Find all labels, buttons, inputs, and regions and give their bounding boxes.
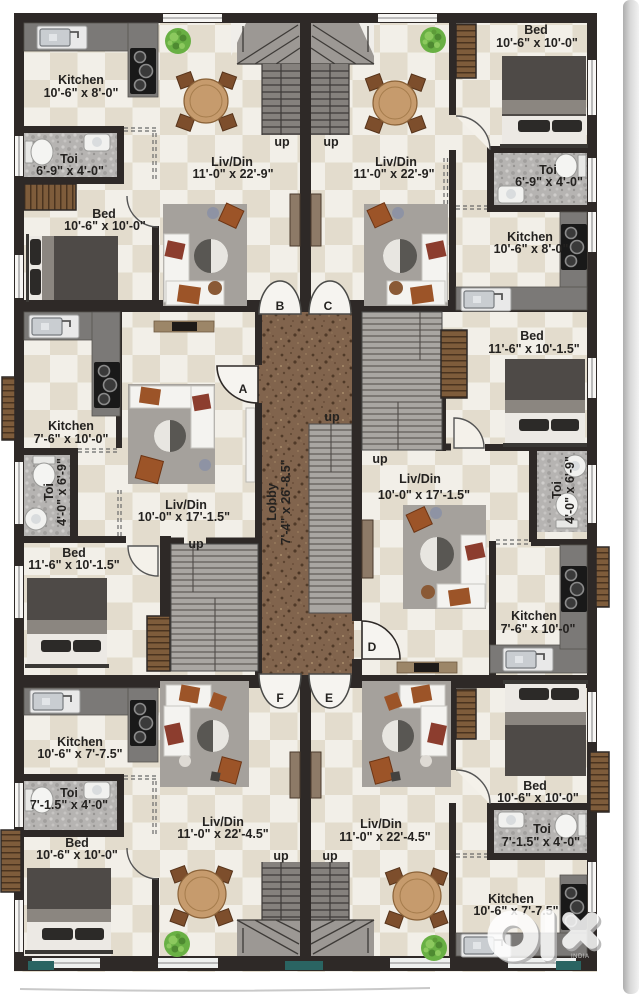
svg-text:4'-0" x 6'-9": 4'-0" x 6'-9" [563, 456, 577, 524]
svg-text:6'-9" x 4'-0": 6'-9" x 4'-0" [515, 175, 583, 189]
svg-text:11'-6" x 10'-1.5": 11'-6" x 10'-1.5" [28, 558, 120, 572]
svg-text:INDIA: INDIA [571, 954, 590, 960]
svg-text:Toi: Toi [42, 483, 56, 501]
svg-text:10'-6" x 7'-7.5": 10'-6" x 7'-7.5" [37, 747, 122, 761]
svg-text:D: D [368, 640, 377, 654]
svg-text:7'-6" x 10'-0": 7'-6" x 10'-0" [501, 622, 576, 636]
svg-text:E: E [325, 691, 333, 705]
svg-text:10'-6" x 8'-0": 10'-6" x 8'-0" [494, 242, 569, 256]
svg-text:Bed: Bed [524, 23, 548, 37]
svg-text:B: B [276, 299, 285, 313]
svg-text:Liv/Din: Liv/Din [360, 817, 402, 831]
svg-text:7'-4" x 26'-8.5": 7'-4" x 26'-8.5" [279, 459, 293, 544]
svg-text:6'-9" x 4'-0": 6'-9" x 4'-0" [36, 164, 104, 178]
svg-text:Toi: Toi [533, 822, 551, 836]
svg-text:up: up [322, 849, 338, 863]
svg-text:up: up [323, 135, 339, 149]
svg-text:Kitchen: Kitchen [58, 73, 104, 87]
svg-text:11'-0" x 22'-4.5": 11'-0" x 22'-4.5" [339, 830, 431, 844]
svg-text:Kitchen: Kitchen [511, 609, 557, 623]
svg-text:Kitchen: Kitchen [48, 419, 94, 433]
svg-text:7'-1.5" x 4'-0": 7'-1.5" x 4'-0" [502, 835, 580, 849]
svg-text:up: up [273, 849, 289, 863]
svg-text:Toi: Toi [550, 481, 564, 499]
svg-text:10'-6" x 10'-0": 10'-6" x 10'-0" [64, 219, 146, 233]
svg-text:10'-6" x 8'-0": 10'-6" x 8'-0" [44, 86, 119, 100]
svg-text:Liv/Din: Liv/Din [399, 472, 441, 486]
svg-text:11'-0" x 22'-9": 11'-0" x 22'-9" [192, 167, 273, 181]
svg-text:A: A [239, 382, 248, 396]
svg-text:Lobby: Lobby [265, 483, 279, 521]
svg-text:up: up [188, 537, 204, 551]
svg-text:11'-0" x 22'-9": 11'-0" x 22'-9" [353, 167, 434, 181]
svg-text:up: up [324, 410, 340, 424]
svg-text:up: up [372, 452, 388, 466]
svg-text:10'-0" x 17'-1.5": 10'-0" x 17'-1.5" [138, 510, 230, 524]
svg-text:10'-6" x 10'-0": 10'-6" x 10'-0" [36, 848, 118, 862]
svg-text:C: C [324, 299, 333, 313]
svg-text:up: up [274, 135, 290, 149]
svg-text:10'-0" x 17'-1.5": 10'-0" x 17'-1.5" [378, 488, 470, 502]
svg-text:7'-1.5" x 4'-0": 7'-1.5" x 4'-0" [30, 798, 108, 812]
svg-text:7'-6" x 10'-0": 7'-6" x 10'-0" [34, 432, 109, 446]
svg-text:Bed: Bed [520, 329, 544, 343]
svg-text:4'-0" x 6'-9": 4'-0" x 6'-9" [55, 458, 69, 526]
svg-text:10'-6" x 10'-0": 10'-6" x 10'-0" [497, 791, 579, 805]
svg-text:F: F [276, 691, 283, 705]
svg-text:10'-6" x 10'-0": 10'-6" x 10'-0" [496, 36, 578, 50]
svg-text:11'-6" x 10'-1.5": 11'-6" x 10'-1.5" [488, 342, 580, 356]
svg-text:11'-0" x 22'-4.5": 11'-0" x 22'-4.5" [177, 827, 269, 841]
